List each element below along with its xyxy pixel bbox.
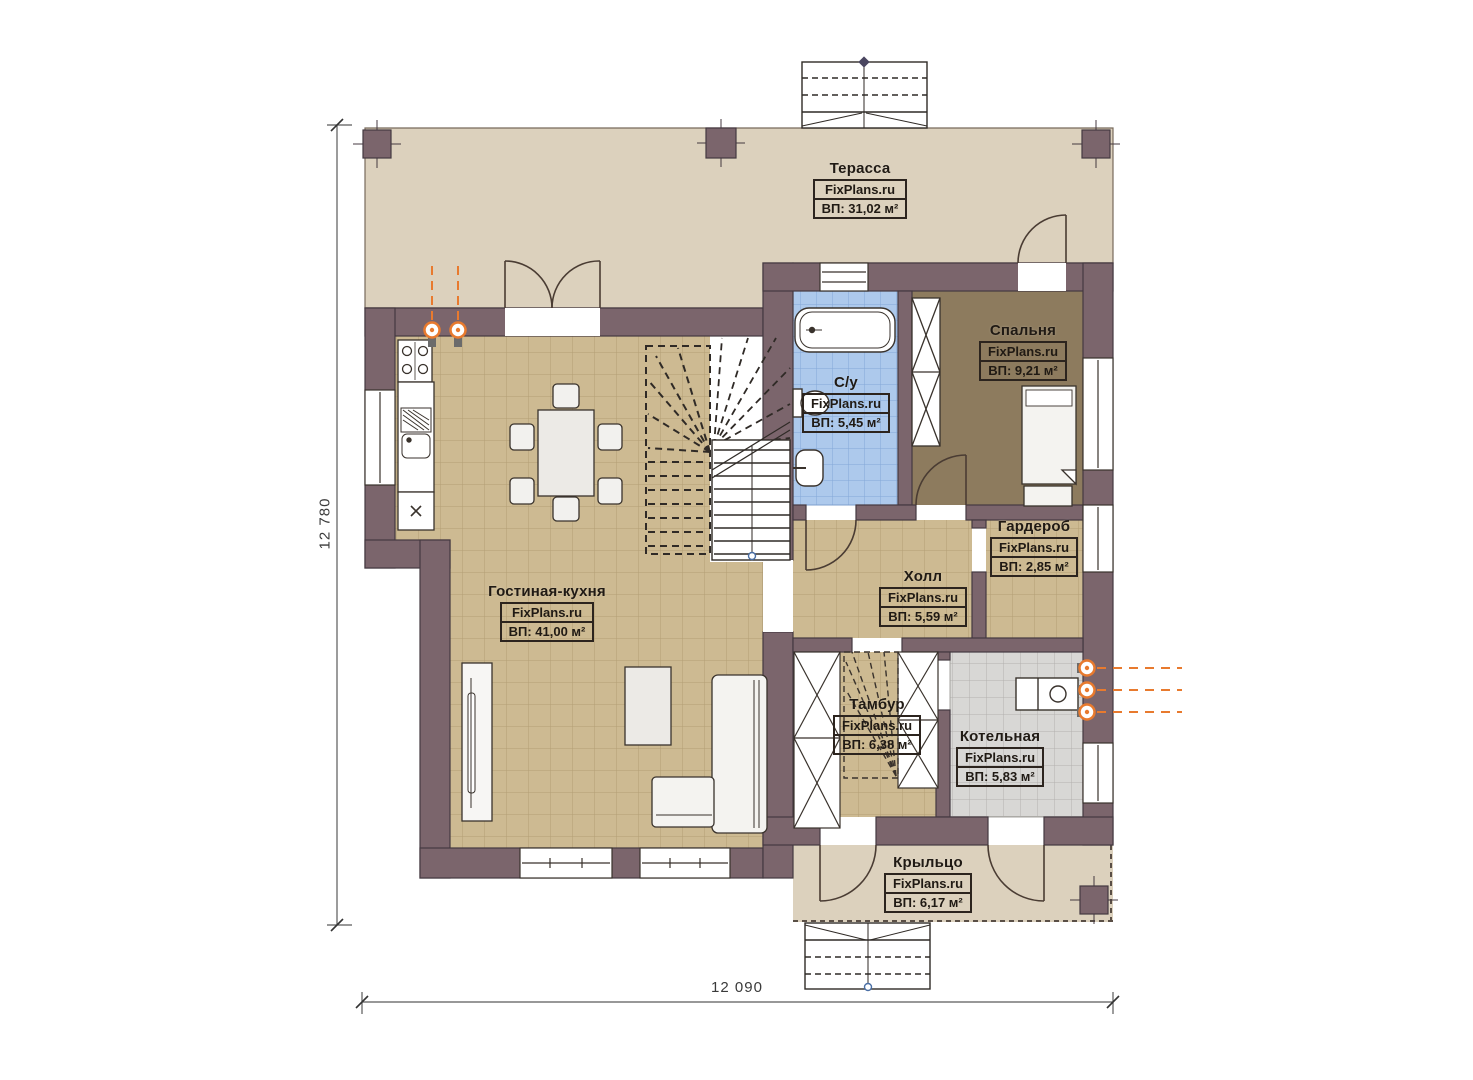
room-label-boiler-room: Котельная FixPlans.ru ВП: 5,83 м²: [915, 728, 1085, 787]
brand-plate: FixPlans.ru: [990, 537, 1078, 558]
room-name-wardrobe-room: Гардероб: [949, 518, 1119, 535]
bathtub: [795, 308, 895, 352]
area-plate: ВП: 41,00 м²: [500, 621, 595, 642]
brand-plate: FixPlans.ru: [802, 393, 890, 414]
exterior-stairs-top: [802, 56, 927, 128]
room-label-bathroom: С/у FixPlans.ru ВП: 5,45 м²: [761, 374, 931, 433]
utility-markers-boiler: [1077, 661, 1182, 720]
brand-plate: FixPlans.ru: [956, 747, 1044, 768]
room-name-living-kitchen: Гостиная-кухня: [462, 583, 632, 600]
room-label-terrace: Терасса FixPlans.ru ВП: 31,02 м²: [775, 160, 945, 219]
floor-plan-page: Терасса FixPlans.ru ВП: 31,02 м² Спальня…: [0, 0, 1473, 1080]
dimension-width-label: 12 090: [662, 979, 812, 996]
boiler-unit: [1016, 678, 1078, 710]
room-name-terrace: Терасса: [775, 160, 945, 177]
room-label-porch: Крыльцо FixPlans.ru ВП: 6,17 м²: [843, 854, 1013, 913]
tv-stand: [462, 663, 492, 821]
brand-plate: FixPlans.ru: [879, 587, 967, 608]
area-plate: ВП: 5,59 м²: [879, 606, 967, 627]
room-name-bathroom: С/у: [761, 374, 931, 391]
room-name-boiler-room: Котельная: [915, 728, 1085, 745]
kitchen-fixtures: [398, 340, 434, 530]
room-plates: FixPlans.ru ВП: 6,17 м²: [884, 873, 972, 913]
brand-plate: FixPlans.ru: [979, 341, 1067, 362]
exterior-stairs-bottom: [805, 923, 930, 991]
room-plates: FixPlans.ru ВП: 41,00 м²: [500, 602, 595, 642]
bathroom-sink: [793, 450, 823, 486]
area-plate: ВП: 6,38 м²: [833, 734, 921, 755]
room-label-bedroom: Спальня FixPlans.ru ВП: 9,21 м²: [938, 322, 1108, 381]
dimension-height-label: 12 780: [317, 449, 334, 599]
area-plate: ВП: 9,21 м²: [979, 360, 1067, 381]
brand-plate: FixPlans.ru: [813, 179, 908, 200]
room-plates: FixPlans.ru ВП: 5,59 м²: [879, 587, 967, 627]
floor-plan-drawing: [0, 0, 1473, 1080]
room-name-porch: Крыльцо: [843, 854, 1013, 871]
room-name-bedroom: Спальня: [938, 322, 1108, 339]
room-name-hall: Холл: [838, 568, 1008, 585]
bed: [1022, 386, 1076, 506]
area-plate: ВП: 6,17 м²: [884, 892, 972, 913]
room-label-hall: Холл FixPlans.ru ВП: 5,59 м²: [838, 568, 1008, 627]
brand-plate: FixPlans.ru: [884, 873, 972, 894]
coffee-table: [625, 667, 671, 745]
room-plates: FixPlans.ru ВП: 9,21 м²: [979, 341, 1067, 381]
area-plate: ВП: 31,02 м²: [813, 198, 908, 219]
room-name-tambour: Тамбур: [792, 696, 962, 713]
room-plates: FixPlans.ru ВП: 6,38 м²: [833, 715, 921, 755]
brand-plate: FixPlans.ru: [500, 602, 595, 623]
room-plates: FixPlans.ru ВП: 31,02 м²: [813, 179, 908, 219]
room-plates: FixPlans.ru ВП: 5,45 м²: [802, 393, 890, 433]
area-plate: ВП: 5,45 м²: [802, 412, 890, 433]
area-plate: ВП: 5,83 м²: [956, 766, 1044, 787]
room-plates: FixPlans.ru ВП: 5,83 м²: [956, 747, 1044, 787]
room-label-living-kitchen: Гостиная-кухня FixPlans.ru ВП: 41,00 м²: [462, 583, 632, 642]
brand-plate: FixPlans.ru: [833, 715, 921, 736]
